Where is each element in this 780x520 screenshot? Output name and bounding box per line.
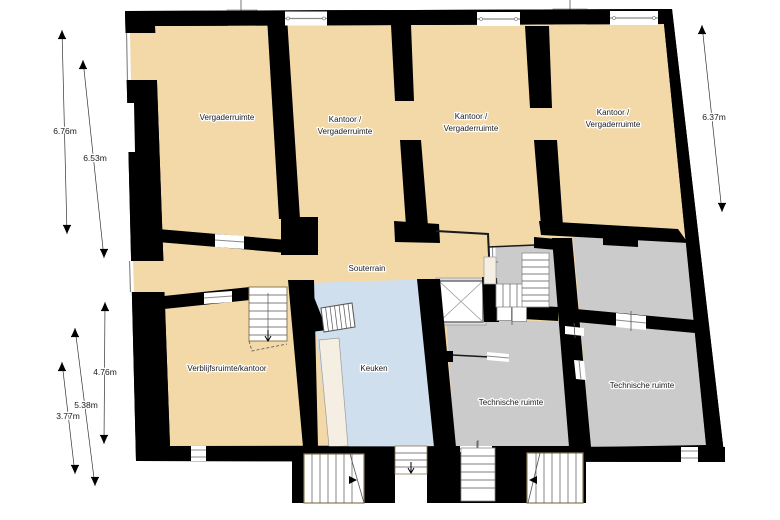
svg-text:Souterrain: Souterrain <box>349 264 386 273</box>
svg-text:Verblijfsruimte/kantoor: Verblijfsruimte/kantoor <box>187 364 266 373</box>
svg-text:6.76m: 6.76m <box>53 126 77 136</box>
svg-text:Keuken: Keuken <box>360 364 387 373</box>
svg-text:6.53m: 6.53m <box>83 153 107 163</box>
svg-text:Vergaderruimte: Vergaderruimte <box>200 113 255 122</box>
svg-text:Kantoor /: Kantoor / <box>329 115 362 124</box>
svg-text:Vergaderruimte: Vergaderruimte <box>444 124 499 133</box>
svg-text:5.38m: 5.38m <box>74 400 98 410</box>
svg-text:6.37m: 6.37m <box>702 112 726 122</box>
svg-text:3.77m: 3.77m <box>56 411 80 421</box>
svg-text:Kantoor /: Kantoor / <box>455 112 488 121</box>
svg-text:Technische ruimte: Technische ruimte <box>479 398 544 407</box>
svg-text:4.76m: 4.76m <box>93 367 117 377</box>
svg-text:Kantoor /: Kantoor / <box>597 108 630 117</box>
svg-text:Vergaderruimte: Vergaderruimte <box>586 120 641 129</box>
svg-text:Technische ruimte: Technische ruimte <box>610 381 675 390</box>
svg-text:Vergaderruimte: Vergaderruimte <box>318 127 373 136</box>
